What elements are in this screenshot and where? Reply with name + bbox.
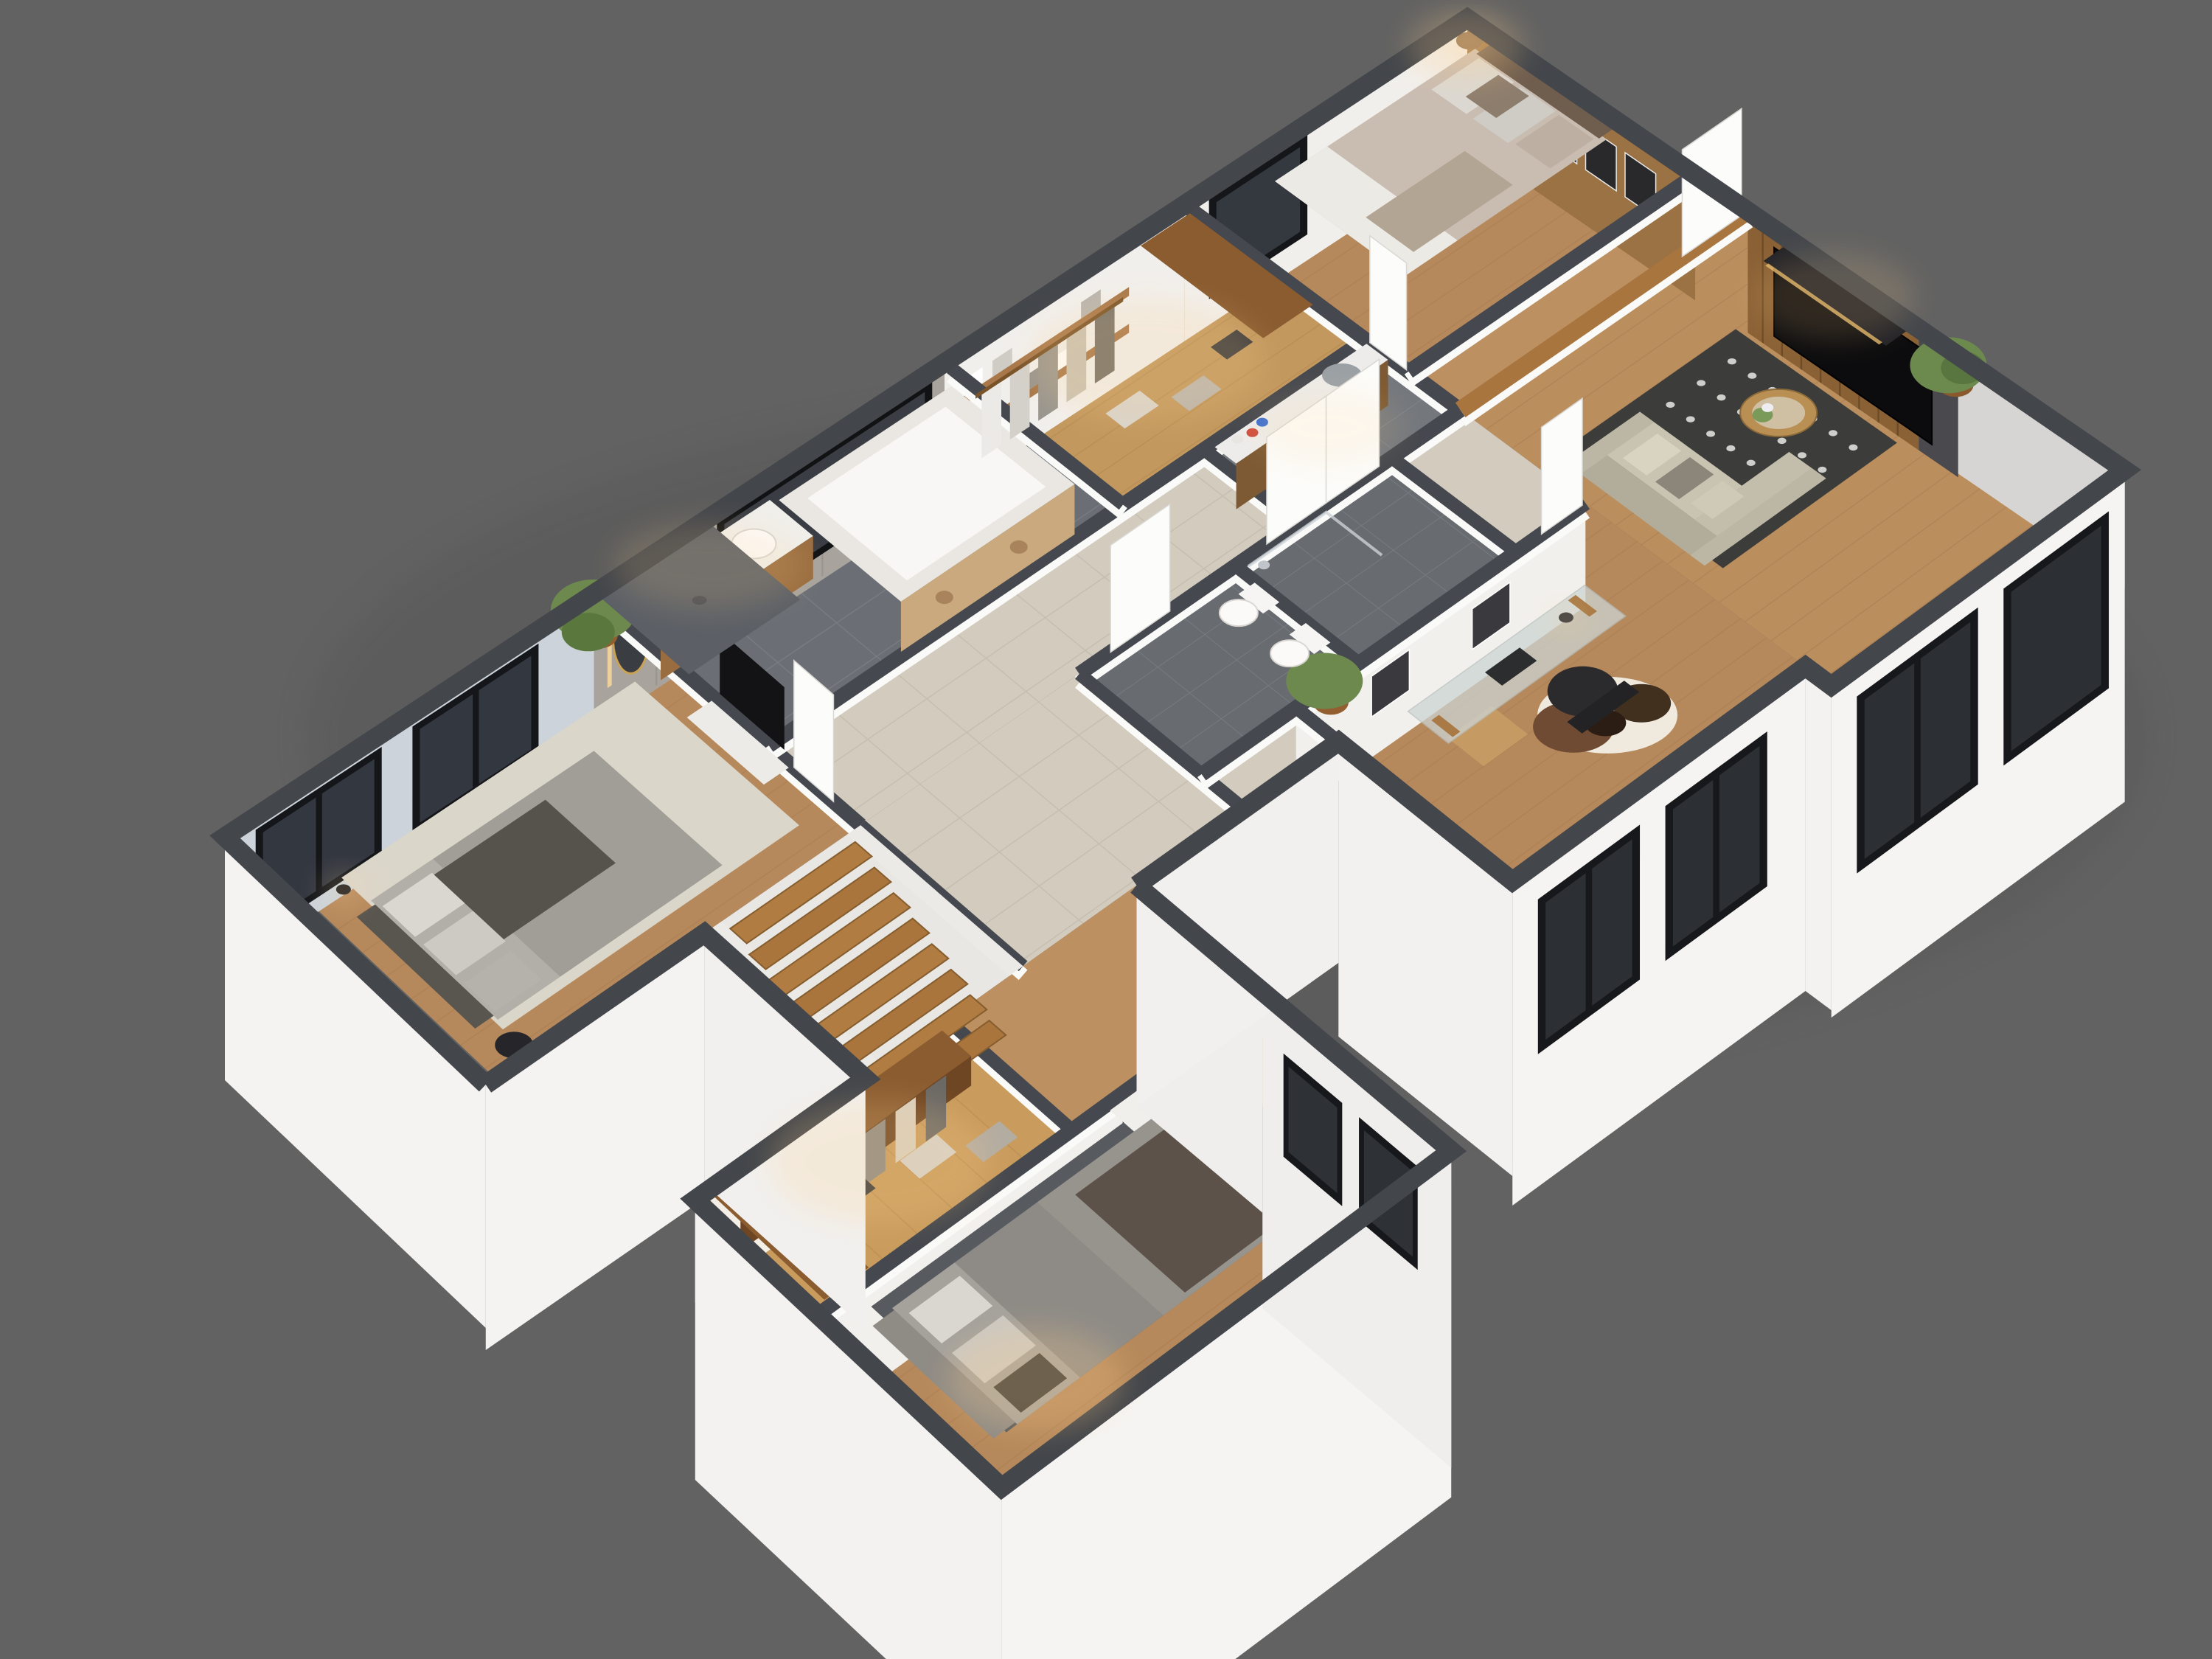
living-rug-pattern-dot [1829,430,1837,436]
laundry-bottle-1 [1231,435,1243,444]
closet1-garment-1 [981,382,1001,459]
master-lamp-glow [321,874,366,904]
master-window-1-mullion [316,793,321,891]
wc1-toilet-1-bowl [1220,599,1258,626]
living-rug-pattern-dot [1726,445,1735,451]
wc2-shower-head [1258,560,1270,569]
glow-living-console [1753,252,1916,341]
living-rug-pattern-dot [1706,431,1715,437]
glow-laundry [1254,386,1402,467]
living-table-flowers-white [1761,403,1773,412]
floorplan-3d-render [0,0,2212,1659]
living-rug-pattern-dot [1747,460,1756,466]
living-rug-pattern-dot [1717,394,1726,400]
master-window-2-mullion [473,690,479,787]
office-lamp-glow [1548,607,1584,629]
living-rug-pattern-dot [1778,438,1787,444]
living-window-1-mullion [1914,658,1921,822]
living-rug-pattern-dot [1666,402,1674,408]
office-window-1-mullion [1586,869,1593,1010]
glow-bedroom3-lamp [947,1328,1124,1431]
living-rug-pattern-dot [1728,358,1736,364]
office-window-2-mullion [1713,775,1719,917]
glow-vanity [613,521,804,610]
living-rug-pattern-dot [1747,372,1756,378]
closet1-garment-2 [1010,363,1030,439]
living-rug-pattern-dot [1686,416,1695,422]
bathtub-tile-motif-2 [1010,540,1028,554]
glow-closet2 [768,1099,990,1225]
living-rug-pattern-dot [1798,452,1806,458]
floorplan-shapes [225,10,2149,1659]
living-rug-pattern-dot [1697,380,1705,386]
living-rug-pattern-dot [1818,467,1826,473]
wc1-toilet-2-bowl [1270,640,1309,667]
bathtub-tile-motif-1 [936,591,953,604]
exterior-step-east-face [1806,667,1832,1010]
glow-closet1 [1029,298,1265,423]
living-rug-pattern-dot [1848,445,1857,451]
glow-bedroom2-lamp [1407,10,1525,83]
floorplan-stage [0,0,2212,1659]
